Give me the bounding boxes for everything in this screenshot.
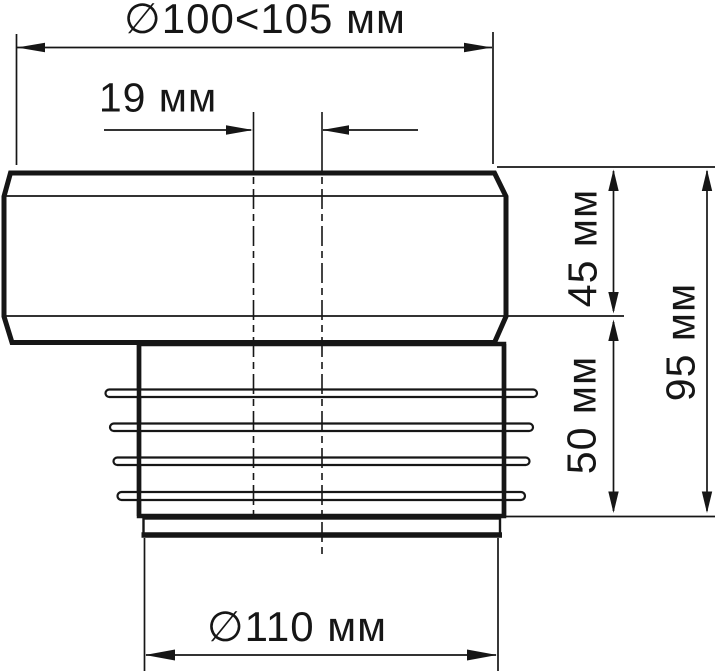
arrow-left-icon xyxy=(322,125,349,134)
dimension-bottom-diameter xyxy=(145,650,497,661)
dimension-label-upper-height: 45 мм xyxy=(563,189,604,307)
upper-collar-outline xyxy=(4,173,506,343)
dimension-label-bottom-diameter: ∅110 мм xyxy=(207,606,387,648)
dimension-offset-19 xyxy=(104,125,418,134)
arrow-down-icon xyxy=(702,492,712,514)
arrow-down-icon xyxy=(608,492,618,514)
arrow-up-icon xyxy=(702,170,712,192)
dimension-upper-height-45 xyxy=(608,170,618,314)
arrow-down-icon xyxy=(608,292,618,314)
dimension-label-top-diameter: ∅100<105 мм xyxy=(124,0,406,40)
arrow-up-icon xyxy=(608,320,618,342)
dimension-label-total-height: 95 мм xyxy=(661,283,702,401)
arrow-left-icon xyxy=(145,650,175,661)
arrow-right-icon xyxy=(226,125,253,134)
dimension-top-diameter xyxy=(17,32,494,165)
arrow-left-icon xyxy=(17,43,45,52)
technical-drawing-page: ∅100<105 мм 19 мм 45 мм 50 мм 95 мм ∅110… xyxy=(0,0,717,672)
dimension-lower-height-50 xyxy=(608,320,618,514)
dimension-label-lower-height: 50 мм xyxy=(562,356,603,474)
arrow-up-icon xyxy=(608,170,618,192)
arrow-right-icon xyxy=(464,43,492,52)
arrow-right-icon xyxy=(467,650,497,661)
dimension-label-offset: 19 мм xyxy=(99,78,217,119)
